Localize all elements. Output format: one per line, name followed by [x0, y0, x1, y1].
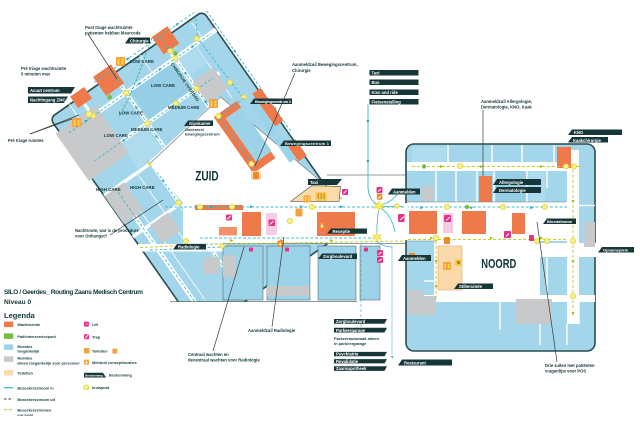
svg-text:Zorgboulevard: Zorgboulevard: [323, 254, 353, 259]
svg-text:Psychiatrie: Psychiatrie: [336, 352, 359, 357]
svg-text:Patiëntenservicepunt: Patiëntenservicepunt: [17, 335, 56, 339]
svg-text:NOORD: NOORD: [481, 256, 516, 271]
svg-text:Drie zuilen met patiënten: Drie zuilen met patiënten: [545, 363, 595, 368]
svg-text:HIGH CARE: HIGH CARE: [96, 187, 121, 192]
svg-text:Aanmelden: Aanmelden: [403, 256, 426, 261]
svg-text:Niveau 0: Niveau 0: [4, 299, 31, 306]
svg-text:Receptie: Receptie: [333, 229, 351, 234]
svg-text:Bewegingscentrum 1: Bewegingscentrum 1: [285, 141, 330, 146]
svg-text:Centraal wachten en: Centraal wachten en: [188, 352, 229, 357]
svg-text:LOW CARE: LOW CARE: [151, 83, 175, 88]
svg-text:Aanmeldzuil Bewegingscentrum,: Aanmeldzuil Bewegingscentrum,: [292, 62, 358, 67]
svg-text:Revalidatie: Revalidatie: [336, 359, 359, 364]
svg-text:alleen toegankelijk voor perso: alleen toegankelijk voor personeel: [17, 361, 79, 365]
svg-text:Taxi: Taxi: [372, 71, 380, 76]
svg-text:Pré triage wachtruimte: Pré triage wachtruimte: [21, 66, 67, 71]
svg-text:toegankelijk: toegankelijk: [17, 350, 40, 354]
svg-text:Dermatologie: Dermatologie: [499, 188, 526, 193]
svg-text:Taxi: Taxi: [310, 180, 318, 185]
svg-text:over hoofd: over hoofd: [17, 413, 33, 417]
svg-text:LOW CARE: LOW CARE: [130, 59, 154, 64]
svg-text:Bewegingscentrum 2: Bewegingscentrum 2: [255, 99, 292, 104]
svg-text:Kaakchirurgie: Kaakchirurgie: [573, 138, 602, 143]
svg-text:Bezoekersstroom uit: Bezoekersstroom uit: [17, 398, 55, 402]
svg-text:Allergologie: Allergologie: [499, 180, 524, 185]
svg-text:in parkeergarage: in parkeergarage: [334, 341, 367, 346]
svg-text:patienten hebben kleurcode: patienten hebben kleurcode: [85, 31, 141, 36]
svg-text:Kiss and ride: Kiss and ride: [372, 90, 399, 95]
svg-text:Post triage wachtruimte: Post triage wachtruimte: [85, 25, 133, 30]
svg-text:Aanmelden: Aanmelden: [393, 189, 416, 194]
svg-text:Zaansapotheek: Zaansapotheek: [336, 366, 367, 371]
svg-text:Bezoekersstromen: Bezoekersstromen: [17, 409, 52, 413]
svg-text:vragenlijst voor POS: vragenlijst voor POS: [545, 369, 586, 374]
svg-text:Zorgboulevard: Zorgboulevard: [336, 319, 366, 324]
svg-text:Lift: Lift: [92, 323, 99, 327]
svg-text:Chirurgie: Chirurgie: [130, 38, 149, 43]
svg-text:Legenda: Legenda: [4, 311, 36, 320]
svg-text:MEDIUM CARE: MEDIUM CARE: [131, 127, 163, 132]
svg-text:5 minuten max: 5 minuten max: [21, 72, 51, 77]
svg-text:Meldzuil conceptlocaties: Meldzuil conceptlocaties: [92, 361, 137, 365]
svg-text:Ruimtes: Ruimtes: [17, 345, 32, 349]
svg-text:Aanmeldzuil Allergologie,: Aanmeldzuil Allergologie,: [481, 99, 532, 104]
svg-text:Onderdeel: Onderdeel: [185, 128, 204, 132]
svg-text:Fietsenstalling: Fietsenstalling: [372, 100, 402, 105]
svg-text:LOW CARE: LOW CARE: [104, 133, 128, 138]
svg-text:voor Onhangst?: voor Onhangst?: [75, 234, 108, 239]
svg-text:ZUID: ZUID: [195, 169, 219, 184]
svg-text:Trap: Trap: [92, 336, 101, 340]
svg-text:Nachtroute, wat is de procedur: Nachtroute, wat is de procedure: [75, 228, 139, 233]
svg-text:Toiletten: Toiletten: [92, 349, 108, 353]
svg-text:Chirurgie: Chirurgie: [292, 68, 311, 73]
svg-text:Restaurant: Restaurant: [404, 360, 426, 365]
svg-text:Gipskamer: Gipskamer: [189, 121, 211, 126]
svg-text:KNO: KNO: [574, 130, 584, 135]
svg-text:Bestemming: Bestemming: [85, 373, 103, 377]
svg-text:Acuut centrum: Acuut centrum: [30, 88, 60, 93]
svg-text:Bestemming: Bestemming: [109, 374, 132, 378]
svg-text:Toiletten: Toiletten: [17, 371, 33, 375]
svg-text:Ruimtes: Ruimtes: [17, 357, 32, 361]
svg-text:Wachtruimte: Wachtruimte: [17, 323, 40, 327]
svg-text:Radiologie: Radiologie: [178, 245, 200, 250]
svg-text:LOW CARE: LOW CARE: [119, 111, 143, 116]
svg-text:Bloedafname: Bloedafname: [547, 219, 573, 224]
svg-text:decentraal wachten voor Radiol: decentraal wachten voor Radiologie: [188, 358, 260, 363]
svg-text:Pré triage ruimtes: Pré triage ruimtes: [8, 138, 44, 143]
svg-text:HIGH CARE: HIGH CARE: [130, 185, 155, 190]
svg-text:Bus: Bus: [372, 80, 381, 85]
svg-text:Nachtingang ZMC: Nachtingang ZMC: [30, 98, 66, 103]
svg-text:MEDIUM CARE: MEDIUM CARE: [168, 105, 200, 110]
svg-text:kruispunt: kruispunt: [92, 386, 110, 390]
svg-text:Stilteruimte: Stilteruimte: [459, 284, 483, 289]
svg-text:SILO / Geerdes_ Routing Zaans: SILO / Geerdes_ Routing Zaans Medisch Ce…: [4, 289, 143, 296]
svg-text:Bezoekersstroom in: Bezoekersstroom in: [17, 387, 54, 391]
svg-text:Dermatologie, KNO, Kaak: Dermatologie, KNO, Kaak: [481, 105, 532, 110]
svg-text:Parkeergarage: Parkeergarage: [336, 328, 366, 333]
svg-text:bewegingscentrum: bewegingscentrum: [185, 133, 220, 137]
svg-text:Opnameplein: Opnameplein: [603, 248, 629, 253]
svg-text:Aanmeldzuil Radiologie: Aanmeldzuil Radiologie: [248, 328, 296, 333]
